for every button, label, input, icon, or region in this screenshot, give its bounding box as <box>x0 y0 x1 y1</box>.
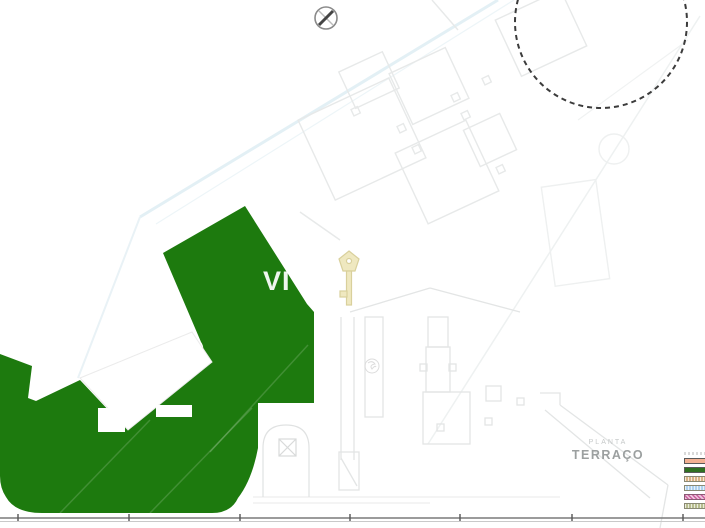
key-watermark-icon <box>339 251 359 305</box>
watermark-text: VI <box>263 266 291 297</box>
legend-magenta-checker <box>684 494 705 500</box>
legend-dark-green <box>684 467 705 473</box>
titleblock-line <box>0 514 705 522</box>
dashed-radius-circle <box>515 0 687 108</box>
terrace-plan-canvas: VI PLANTA TERRAÇO <box>0 0 705 528</box>
legend-title-strip <box>684 452 705 455</box>
plan-caption-large: TERRAÇO <box>558 448 658 462</box>
plan-caption: PLANTA TERRAÇO <box>558 438 658 462</box>
legend-swatches <box>684 452 705 512</box>
lower-building-outline <box>253 288 668 528</box>
plan-caption-small: PLANTA <box>558 438 658 448</box>
legend-salmon <box>684 458 705 464</box>
legend-tan-dotted <box>684 476 705 482</box>
arched-niche-outline <box>263 425 309 497</box>
north-marker-icon <box>315 7 337 29</box>
tree-scribble-icon <box>365 359 379 373</box>
legend-olive-dotted <box>684 503 705 509</box>
legend-light-blue <box>684 485 705 491</box>
pool-outline <box>541 134 629 286</box>
